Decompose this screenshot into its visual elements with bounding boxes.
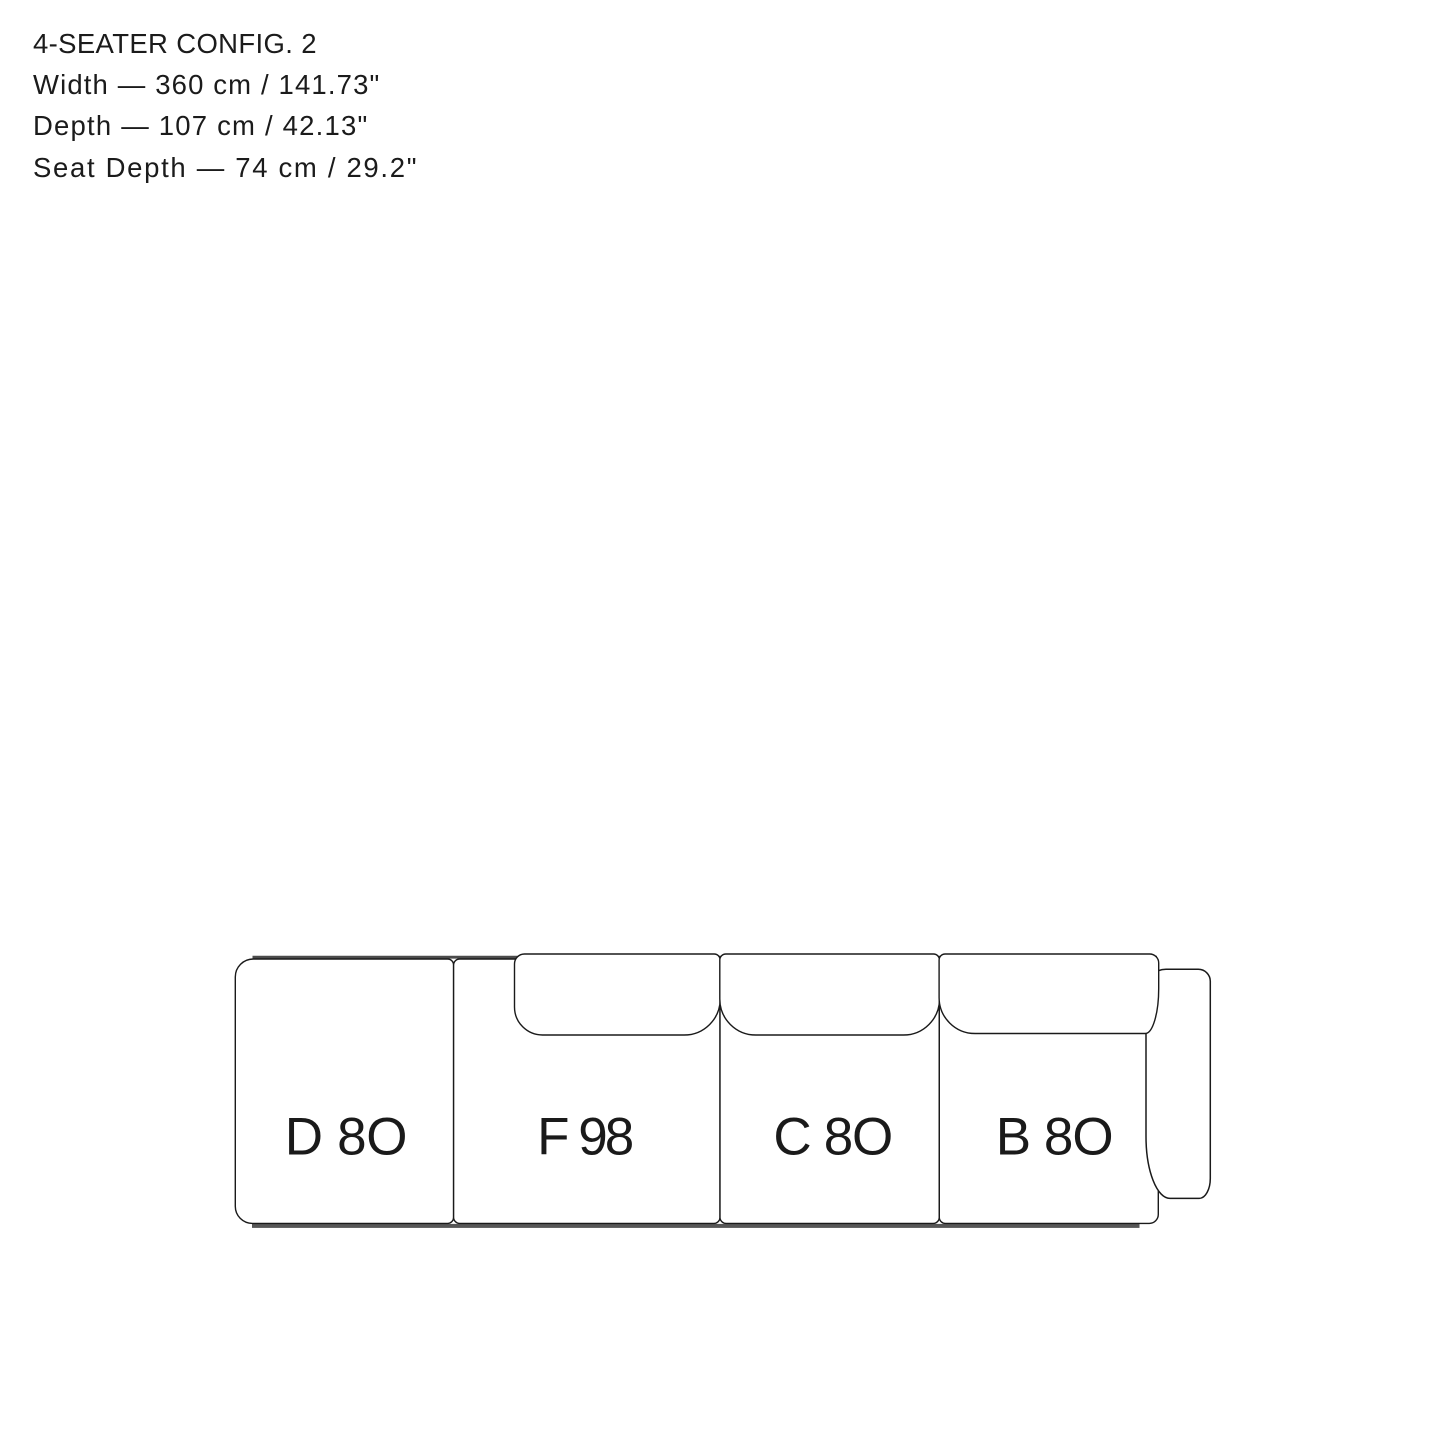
svg-text:Width — 360 cm / 141.73": Width — 360 cm / 141.73" (33, 69, 380, 100)
svg-text:4-SEATER CONFIG. 2: 4-SEATER CONFIG. 2 (33, 28, 317, 59)
svg-text:Seat Depth — 74 cm / 29.2": Seat Depth — 74 cm / 29.2" (33, 152, 418, 183)
svg-text:D 8O: D 8O (285, 1108, 407, 1167)
svg-text:C 8O: C 8O (773, 1108, 892, 1167)
svg-text:F 98: F 98 (537, 1108, 633, 1167)
svg-text:B 8O: B 8O (996, 1108, 1113, 1167)
svg-text:Depth — 107 cm / 42.13": Depth — 107 cm / 42.13" (33, 110, 368, 141)
